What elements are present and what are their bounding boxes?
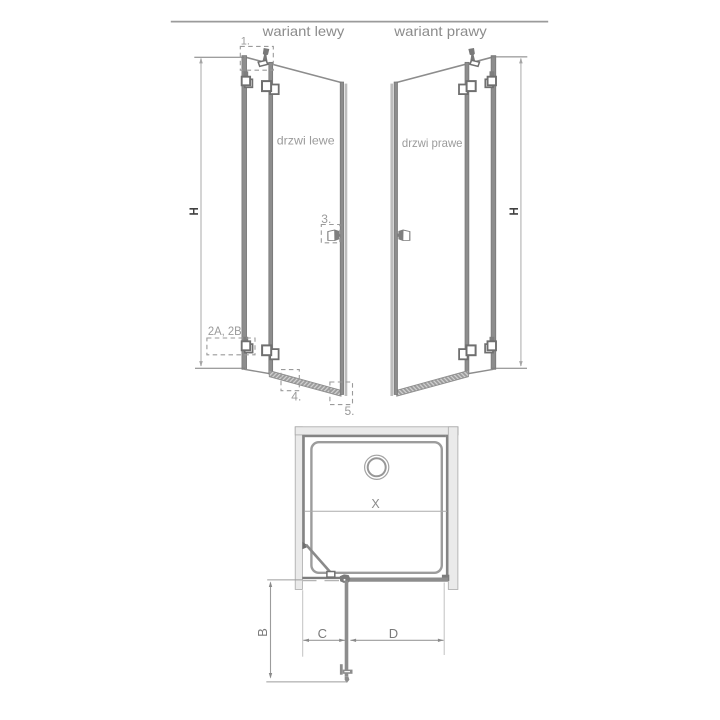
svg-text:H: H (189, 207, 201, 215)
svg-text:X: X (371, 497, 380, 511)
svg-text:3.: 3. (321, 212, 331, 226)
svg-text:H: H (509, 207, 521, 215)
svg-text:4.: 4. (291, 390, 301, 404)
svg-text:5.: 5. (345, 404, 355, 418)
svg-text:drzwi prawe: drzwi prawe (402, 136, 463, 150)
svg-text:B: B (255, 628, 270, 637)
svg-text:drzwi lewe: drzwi lewe (277, 134, 335, 148)
svg-text:wariant lewy: wariant lewy (262, 23, 345, 39)
svg-text:D: D (389, 626, 398, 641)
svg-text:1.: 1. (241, 36, 250, 48)
svg-text:2A, 2B: 2A, 2B (208, 326, 242, 338)
svg-text:wariant prawy: wariant prawy (393, 23, 486, 39)
svg-text:C: C (318, 626, 327, 641)
